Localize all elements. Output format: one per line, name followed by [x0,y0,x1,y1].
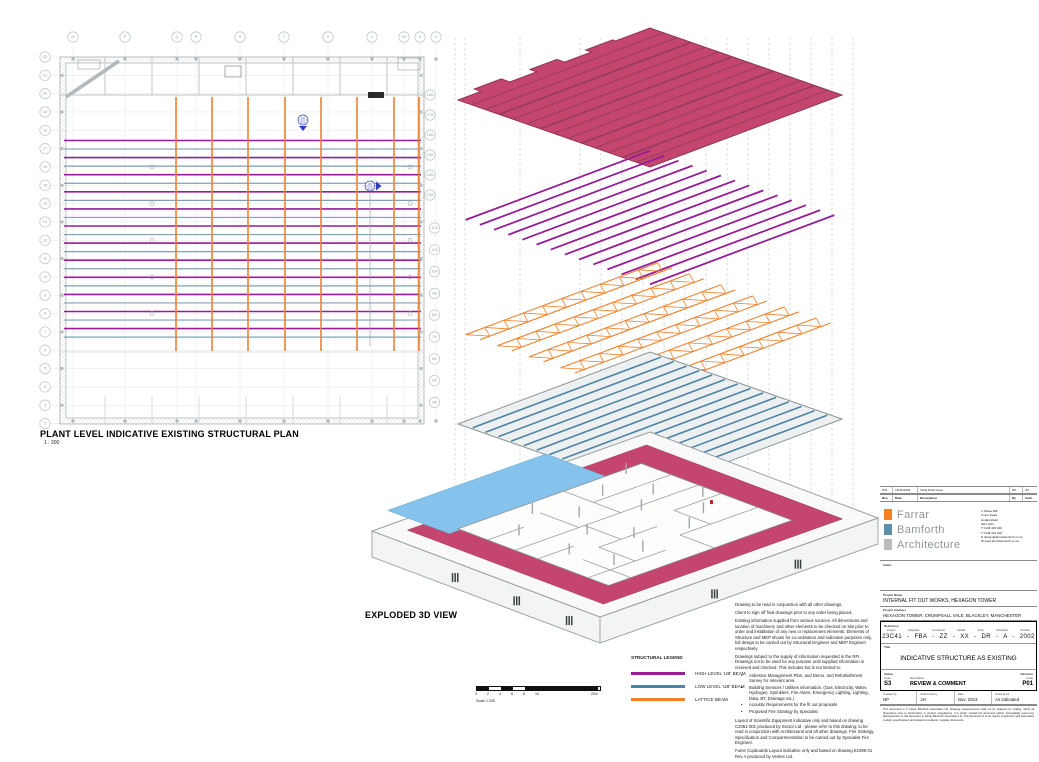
title-box: Title INDICATIVE STRUCTURE AS EXISTING [881,644,1036,671]
project-name-box: Project Name INTERNAL FIT OUT WORKS, HEX… [880,591,1037,607]
legend-swatch [631,698,685,701]
scale-bar-segment [513,687,525,690]
svg-text:18: 18 [43,128,47,132]
logo-word-1: Farrar [897,509,929,521]
reference-header: Discipline [996,629,1008,632]
reference-header: Number [1020,629,1030,632]
general-notes: Drawing to be read in conjunction with a… [735,602,876,762]
svg-text:15: 15 [43,183,47,187]
svg-text:6: 6 [44,348,46,352]
scale-end-label: 20m [591,692,598,696]
note-bullet: •Acoustic Requirements for the fit out p… [741,702,876,708]
svg-text:9: 9 [44,293,46,297]
created-by: NP [883,697,913,702]
note-bullet: •Asbestos Management Plan, and Demo. and… [741,673,876,684]
svg-text:11: 11 [43,257,47,261]
reference-header: Project [887,629,895,632]
scale-bar-segment [537,687,598,690]
logo-word-3: Architecture [897,539,961,551]
svg-text:8: 8 [44,312,46,316]
revision-code: P01 [1003,681,1033,687]
svg-text:M: M [71,35,74,39]
svg-text:2002: 2002 [300,120,306,124]
high-level-beams-layer [466,151,835,284]
scale-bar-segment [501,687,513,690]
note-bullet: •Building Services / Utilities informati… [741,685,876,702]
revision-entry-description: Initial Draft Issue [918,487,1010,493]
status-code: S3 [884,681,910,687]
svg-text:Q: Q [176,35,179,39]
note-paragraph: Client to sign off final drawings prior … [735,610,876,616]
scale-bar-caption: Scale 1:200 [476,699,606,703]
svg-text:2: 2 [44,422,46,426]
revision-entry-row: P01 16/11/2023 Initial Draft Issue NP JH [880,486,1037,494]
revision-entry-date: 16/11/2023 [893,487,918,493]
legend-swatch [631,685,685,688]
project-address-box: Project Address HEXAGON TOWER, CRUMPSALL… [880,607,1037,622]
reference-header: Functional [932,629,944,632]
svg-text:10: 10 [43,275,47,279]
issue-date: Nov. 2023 [958,697,988,702]
scale-tick-label: 4 [499,692,501,696]
plan-scale: 1 : 200 [44,440,59,446]
svg-text:14: 14 [43,202,47,206]
practice-address: 4, Bates MillColne RoadHuddersfieldHD1 3… [981,507,1033,556]
scale-tick-label: 8 [523,692,525,696]
svg-text:4: 4 [44,385,46,389]
logo-word-2: Bamforth [897,524,945,536]
slab-top-face [351,424,878,617]
svg-text:21: 21 [43,73,47,77]
note-paragraph: Fume Cupboards Layout indicative only an… [735,748,876,759]
note-paragraph: Drawings subject to the supply of inform… [735,654,876,671]
scale-tick-label: 0 [475,692,477,696]
svg-text:20: 20 [43,92,47,96]
client-box: Client [880,561,1037,591]
legend-swatch [631,672,685,675]
reference-title-status-box: Reference ProjectOriginatorFunctionalSpa… [880,621,1037,691]
project-address: HEXAGON TOWER, CRUMPSALL VALE, BLACKLEY,… [880,612,1037,620]
reference-header: Originator [908,629,920,632]
scale-bar-segment [477,687,489,690]
revision-entry-rev: P01 [880,487,893,493]
scale-tick-label: 6 [511,692,513,696]
reference-header: Form [978,629,984,632]
drawing-number: 23C41 - FBA - ZZ - XX - DR - A - 2002 [881,632,1036,643]
authorised-by: JH [920,697,950,702]
revision-entry-auth: JH [1023,487,1037,493]
sheet-scale: As indicated [995,697,1034,702]
exploded-3d-view-drawing [350,20,890,650]
svg-text:22: 22 [43,55,47,59]
reference-box: Reference ProjectOriginatorFunctionalSpa… [881,622,1036,644]
scale-tick-label: 2 [487,692,489,696]
plan-title: PLANT LEVEL INDICATIVE EXISTING STRUCTUR… [40,429,299,439]
red-equipment-mark [710,500,713,504]
svg-text:S: S [239,35,242,39]
svg-text:5: 5 [44,367,46,371]
legend-label: LATTICE BEAM [695,697,728,702]
revision-header-row: Rev. Date Description By Auth. [880,494,1037,502]
logo-blue-square-icon [884,524,892,535]
scale-tick-label: 10 [535,692,539,696]
reference-header: Spatial [957,629,965,632]
exploded-view-title: EXPLODED 3D VIEW [365,610,457,620]
svg-text:P: P [124,35,127,39]
revision-entry-by: NP [1010,487,1023,493]
svg-text:19: 19 [43,110,47,114]
practice-logo: Farrar Bamforth Architecture [884,507,961,556]
svg-text:U: U [327,35,330,39]
scale-bar-labels: 024681020m [476,691,606,697]
svg-text:7: 7 [44,330,46,334]
note-paragraph: Drawing to be read in conjunction with a… [735,602,876,608]
drawing-sheet: { "sheet": { "plan_title": "PLANT LEVEL … [0,0,1039,756]
disclaimer-text: This document is © Farrar Bamforth Assoc… [880,705,1037,725]
svg-text:12: 12 [43,238,47,242]
drawing-title: INDICATIVE STRUCTURE AS EXISTING [881,649,1036,669]
logo-orange-square-icon [884,509,892,520]
svg-text:17: 17 [43,147,47,151]
practice-identity-box: Farrar Bamforth Architecture 4, Bates Mi… [880,502,1037,561]
project-name: INTERNAL FIT OUT WORKS, HEXAGON TOWER [880,597,1037,606]
svg-text:16: 16 [43,165,47,169]
svg-text:R: R [195,35,198,39]
title-block: P01 16/11/2023 Initial Draft Issue NP JH… [880,486,1037,725]
note-paragraph: Existing information supplied from vario… [735,618,876,651]
scale-bar-segment [489,687,501,690]
meta-row: Created by NP Authorised by JH Date Nov.… [880,691,1037,706]
scale-bar: 024681020m Scale 1:200 [476,686,606,703]
svg-text:3: 3 [44,403,46,407]
status-box: Status Revision Code S3 Description REVI… [881,670,1036,690]
scale-bar-segment [525,687,537,690]
status-description: REVIEW & COMMENT [910,681,1003,687]
svg-text:13: 13 [43,220,47,224]
note-bullet: •Proposed Fire Strategy by Specialist [741,709,876,715]
svg-text:8.8: 8.8 [301,116,305,120]
address-line: W www.farrarbamforth.co.uk [981,539,1033,543]
roof-deck-layer [451,26,842,167]
note-paragraph: Layout of Scientific Equipment indicativ… [735,718,876,746]
logo-gray-square-icon [884,539,892,550]
